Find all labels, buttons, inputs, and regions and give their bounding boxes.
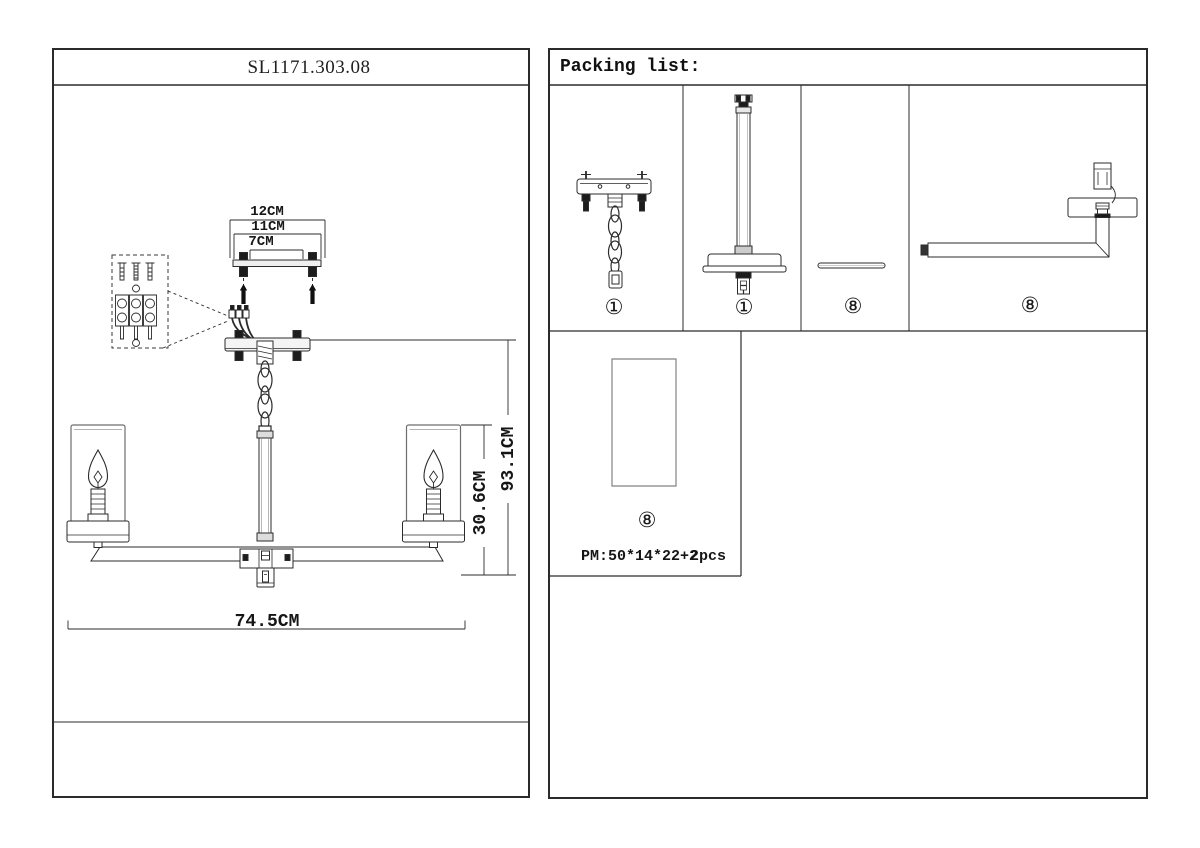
down-rod-with-canopy-drawing [703,95,786,294]
glass-shade-drawing [612,359,676,486]
connector-rod-drawing [818,263,885,268]
dimension-lines [68,340,516,629]
dim-total-width: 74.5CM [217,613,317,631]
drawing-panel: SL1171.303.08 12CM 11CM 7CM 30.6CM 93.1C… [52,48,530,798]
item-callout-1: ① [601,295,627,319]
package-size-note: PM:50*14*22+2 [581,548,698,565]
ceiling-bracket-with-chain-drawing [577,171,651,288]
lamp-arm-drawing [921,163,1137,257]
dim-shade-drop: 30.6CM [472,459,490,547]
dim-plate-mid: 11CM [238,219,298,235]
model-number: SL1171.303.08 [52,52,530,84]
dim-plate-inner: 7CM [231,234,291,250]
candle-shade-assembly-right [403,425,465,548]
packing-list-drawings [548,48,1148,799]
item-callout-3: ⑧ [840,294,866,318]
dim-total-height: 93.1CM [500,415,518,503]
ceiling-canopy [225,331,310,365]
hardware-detail-box [112,255,228,348]
item-callout-5: ⑧ [634,508,660,532]
candle-shade-assembly [67,425,129,548]
packing-list-panel: Packing list: ① ① ⑧ ⑧ ⑧ PM:50*14*22+2 2p… [548,48,1148,799]
package-qty-note: 2pcs [690,548,726,565]
item-callout-2: ① [731,295,757,319]
dim-plate-outer: 12CM [237,204,297,220]
hanging-chain [258,361,272,432]
center-down-rod [257,431,273,541]
item-callout-4: ⑧ [1017,293,1043,317]
packing-list-header: Packing list: [560,51,700,83]
chandelier-assembly-drawing [52,48,530,798]
spec-sheet-page: SL1171.303.08 12CM 11CM 7CM 30.6CM 93.1C… [0,0,1200,848]
arm-bar [91,547,443,587]
